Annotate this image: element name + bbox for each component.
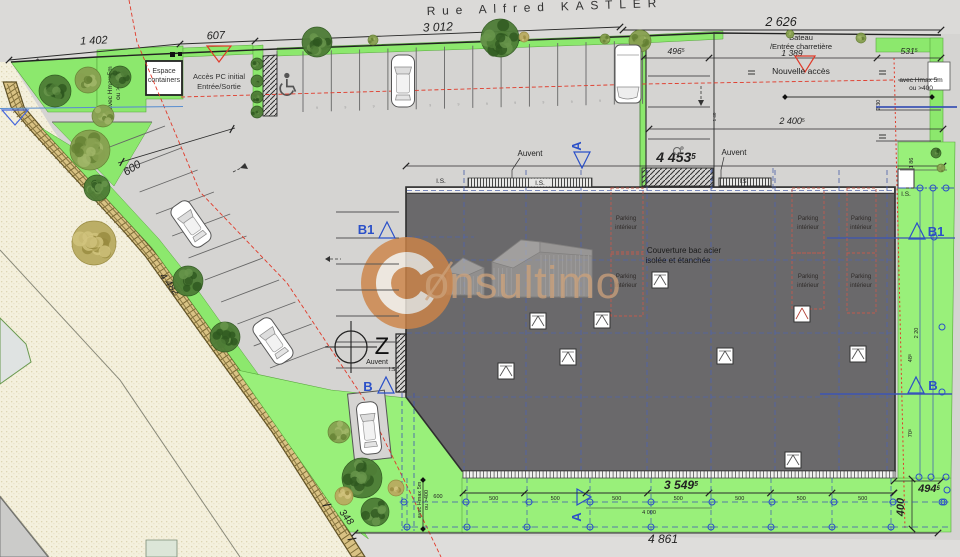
svg-text:9: 9	[542, 101, 544, 105]
svg-text:B: B	[363, 379, 372, 394]
svg-text:A: A	[569, 141, 584, 151]
svg-text:intérieur: intérieur	[615, 225, 637, 231]
svg-text:avec Hmax 5m: avec Hmax 5m	[899, 77, 942, 84]
svg-text:9: 9	[599, 99, 601, 103]
svg-text:500: 500	[674, 496, 683, 502]
svg-text:500: 500	[489, 496, 498, 502]
svg-text:Nouvelle accès: Nouvelle accès	[772, 66, 830, 76]
svg-text:isolée et étanchée: isolée et étanchée	[646, 256, 711, 265]
svg-text:9: 9	[486, 102, 488, 106]
svg-text:I.S.: I.S.	[535, 180, 545, 187]
svg-text:1 86: 1 86	[909, 158, 915, 169]
svg-text:A: A	[569, 512, 584, 522]
svg-text:600: 600	[433, 494, 442, 500]
svg-text:9: 9	[458, 103, 460, 107]
svg-text:500: 500	[612, 496, 621, 502]
svg-text:500: 500	[858, 496, 867, 502]
svg-text:Parking: Parking	[798, 216, 818, 222]
svg-text:500: 500	[797, 496, 806, 502]
svg-text:1 40: 1 40	[712, 112, 717, 121]
svg-text:/Entrée charretière: /Entrée charretière	[770, 42, 832, 51]
svg-text:400: 400	[895, 497, 907, 517]
svg-text:I.S.: I.S.	[436, 178, 446, 185]
svg-text:1 402: 1 402	[80, 34, 108, 47]
svg-text:Parking: Parking	[616, 216, 636, 222]
svg-text:9: 9	[429, 103, 431, 107]
svg-text:intérieur: intérieur	[850, 283, 872, 289]
svg-text:4 4535: 4 4535	[655, 149, 696, 165]
svg-text:I.S.: I.S.	[740, 179, 749, 185]
svg-text:avec Hmax 5m: avec Hmax 5m	[417, 481, 423, 518]
svg-text:ou >400: ou >400	[424, 490, 430, 510]
svg-text:Z: Z	[375, 333, 390, 360]
svg-text:intérieur: intérieur	[797, 283, 819, 289]
svg-text:9: 9	[373, 105, 375, 109]
svg-text:9: 9	[344, 105, 346, 109]
svg-text:intérieur: intérieur	[797, 225, 819, 231]
svg-text:Parking: Parking	[798, 274, 818, 280]
svg-text:B1: B1	[358, 222, 375, 237]
svg-text:2 626: 2 626	[764, 15, 796, 29]
svg-text:I.S.: I.S.	[901, 191, 911, 198]
svg-text:500: 500	[735, 496, 744, 502]
svg-text:4 861: 4 861	[648, 532, 678, 546]
svg-text:Auvent: Auvent	[518, 149, 544, 158]
svg-text:4 000: 4 000	[642, 510, 656, 516]
svg-text:Entrée/Sortie: Entrée/Sortie	[197, 82, 241, 91]
svg-text:containers: containers	[148, 77, 181, 84]
svg-text:Parking: Parking	[851, 216, 871, 222]
svg-text:9: 9	[316, 106, 318, 110]
svg-text:2 20: 2 20	[914, 328, 920, 339]
svg-text:607: 607	[206, 30, 226, 43]
svg-text:B1: B1	[928, 224, 945, 239]
svg-text:2 30: 2 30	[876, 100, 882, 111]
svg-text:3 012: 3 012	[423, 19, 454, 34]
svg-text:ou >400: ou >400	[909, 85, 933, 92]
svg-text:2 4005: 2 4005	[778, 116, 805, 126]
svg-text:Couverture bac acier: Couverture bac acier	[647, 246, 722, 255]
svg-text:9: 9	[571, 100, 573, 104]
svg-text:3 5495: 3 5495	[664, 478, 698, 492]
svg-text:intérieur: intérieur	[850, 225, 872, 231]
svg-text:Auvent: Auvent	[722, 148, 748, 157]
svg-text:Accès PC initial: Accès PC initial	[193, 72, 245, 81]
svg-text:Parking: Parking	[851, 274, 871, 280]
svg-text:I.S.: I.S.	[389, 367, 398, 373]
svg-text:Espace: Espace	[152, 68, 175, 75]
svg-text:onsultimo: onsultimo	[424, 257, 621, 308]
svg-text:Auvent: Auvent	[366, 359, 388, 366]
svg-text:500: 500	[551, 496, 560, 502]
svg-text:9: 9	[514, 101, 516, 105]
